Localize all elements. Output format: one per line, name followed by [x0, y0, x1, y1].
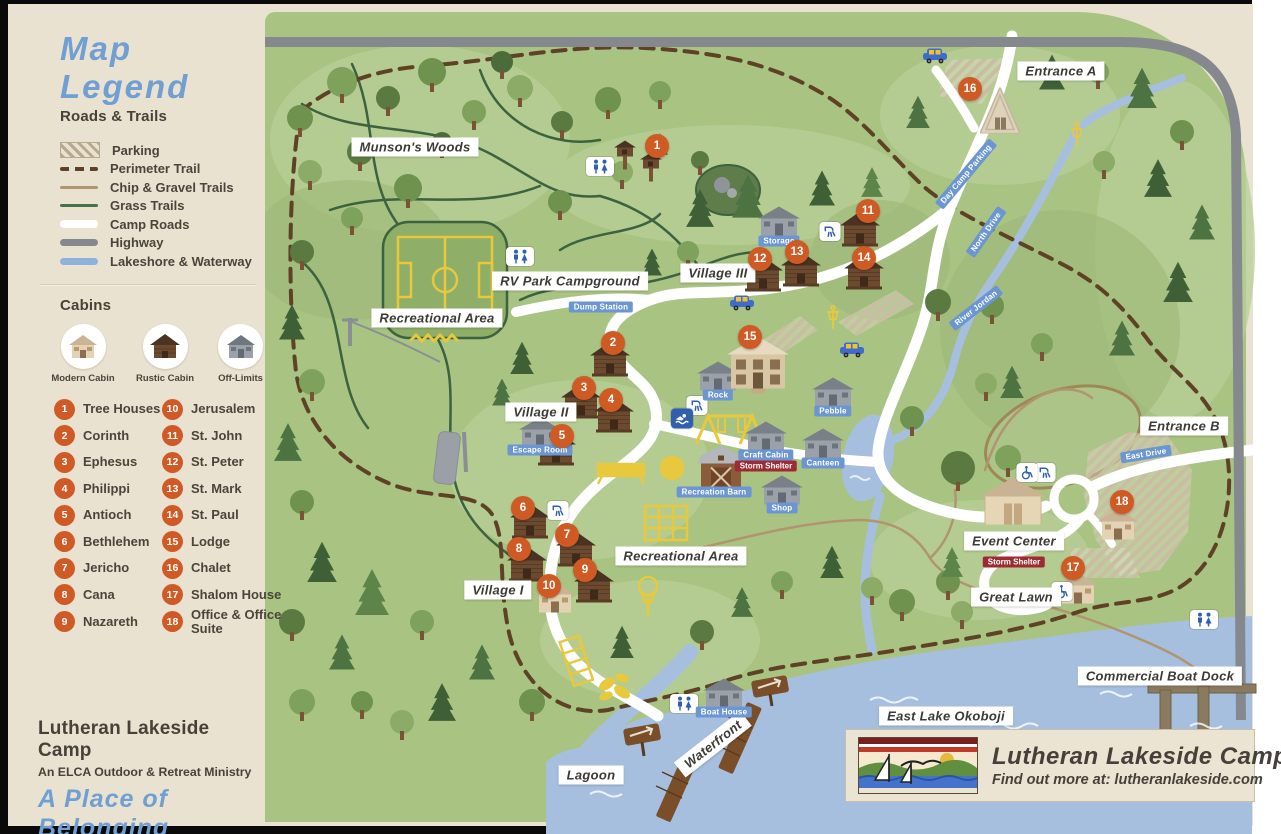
cabin-name: Office & Office Suite: [191, 608, 282, 635]
cabins-heading: Cabins: [60, 297, 256, 314]
roads-trails-heading: Roads & Trails: [60, 108, 256, 125]
legend-road-item-parking: Parking: [60, 141, 256, 159]
footer-ministry-line: An ELCA Outdoor & Retreat Ministry: [38, 765, 258, 779]
cabin-name: Nazareth: [83, 615, 138, 629]
cabin-type-label: Off-Limits: [218, 373, 263, 384]
cabin-number-badge: 8: [54, 584, 75, 605]
legend-cabin-jericho: 7Jericho: [54, 555, 162, 582]
cabin-type-legend: Modern CabinRustic CabinOff-Limits: [54, 324, 256, 384]
cabin-name: Shalom House: [191, 588, 281, 602]
cabin-number-badge: 15: [162, 531, 183, 552]
cabin-type-offlimits: Off-Limits: [218, 324, 263, 384]
cabin-number-badge: 14: [162, 505, 183, 526]
legend-cabin-bethlehem: 6Bethlehem: [54, 529, 162, 556]
cabin-name: Bethlehem: [83, 535, 149, 549]
cabin-number-badge: 1: [54, 399, 75, 420]
cabin-number-badge: 3: [54, 452, 75, 473]
cabin-name: Jericho: [83, 561, 129, 575]
cabin-type-label: Modern Cabin: [51, 373, 114, 384]
legend-panel: Map Legend Roads & Trails ParkingPerimet…: [8, 4, 265, 826]
cabin-number-badge: 2: [54, 425, 75, 446]
legend-cabin-st-paul: 14St. Paul: [162, 502, 282, 529]
cabin-number-badge: 11: [162, 425, 183, 446]
offlimits-cabin-icon: [218, 324, 263, 369]
camp-map-page: Munson's WoodsEntrance ARV Park Campgrou…: [0, 0, 1281, 834]
cabin-name: St. Peter: [191, 455, 244, 469]
cabin-name: St. John: [191, 429, 242, 443]
legend-road-label: Camp Roads: [110, 217, 189, 232]
logo-banner: Lutheran Lakeside Camp Find out more at:…: [845, 729, 1255, 802]
legend-divider: [40, 284, 256, 285]
legend-road-label: Lakeshore & Waterway: [110, 254, 252, 269]
cabin-number-badge: 17: [162, 584, 183, 605]
grass-swatch: [60, 204, 98, 207]
legend-road-item-camp-roads: Camp Roads: [60, 215, 256, 233]
legend-cabin-philippi: 4Philippi: [54, 476, 162, 503]
legend-cabin-shalom-house: 17Shalom House: [162, 582, 282, 609]
legend-cabin-nazareth: 9Nazareth: [54, 608, 162, 635]
modern-cabin-icon: [61, 324, 106, 369]
cabin-name: Jerusalem: [191, 402, 255, 416]
cabin-name: St. Paul: [191, 508, 239, 522]
legend-cabin-office-office-suite: 18Office & Office Suite: [162, 608, 282, 635]
perimeter-swatch: [60, 167, 98, 171]
legend-road-label: Chip & Gravel Trails: [110, 180, 234, 195]
legend-road-item-grass-trails: Grass Trails: [60, 197, 256, 215]
cabin-number-list: 1Tree Houses2Corinth3Ephesus4Philippi5An…: [54, 396, 256, 635]
legend-road-label: Grass Trails: [110, 198, 184, 213]
cabin-number-badge: 5: [54, 505, 75, 526]
legend-road-item-perimeter-trail: Perimeter Trail: [60, 160, 256, 178]
legend-title: Map Legend: [60, 30, 256, 106]
footer-tagline: A Place of Belonging: [38, 785, 258, 834]
cabin-type-modern: Modern Cabin: [54, 324, 112, 384]
legend-road-label: Highway: [110, 235, 163, 250]
legend-footer: Lutheran Lakeside Camp An ELCA Outdoor &…: [38, 718, 258, 834]
cabin-name: St. Mark: [191, 482, 242, 496]
legend-cabin-chalet: 16Chalet: [162, 555, 282, 582]
legend-cabin-st-mark: 13St. Mark: [162, 476, 282, 503]
legend-cabin-st-john: 11St. John: [162, 423, 282, 450]
water-swatch: [60, 258, 98, 265]
legend-road-item-chip-gravel-trails: Chip & Gravel Trails: [60, 178, 256, 196]
cabin-number-badge: 16: [162, 558, 183, 579]
cabin-number-badge: 18: [162, 611, 183, 632]
cabin-name: Cana: [83, 588, 115, 602]
legend-road-label: Parking: [112, 143, 160, 158]
legend-cabin-cana: 8Cana: [54, 582, 162, 609]
cabin-number-badge: 7: [54, 558, 75, 579]
cabin-name: Chalet: [191, 561, 231, 575]
cabin-number-badge: 9: [54, 611, 75, 632]
cabin-name: Philippi: [83, 482, 130, 496]
legend-road-label: Perimeter Trail: [110, 161, 200, 176]
legend-road-item-highway: Highway: [60, 234, 256, 252]
map-terrain: [265, 12, 1246, 822]
cabin-number-badge: 6: [54, 531, 75, 552]
logo-subtitle: Find out more at: lutheranlakeside.com: [992, 772, 1281, 788]
cabin-name: Lodge: [191, 535, 230, 549]
legend-cabin-ephesus: 3Ephesus: [54, 449, 162, 476]
footer-org-name: Lutheran Lakeside Camp: [38, 718, 258, 762]
legend-cabin-st-peter: 12St. Peter: [162, 449, 282, 476]
road-legend-list: ParkingPerimeter TrailChip & Gravel Trai…: [60, 141, 256, 270]
legend-cabin-lodge: 15Lodge: [162, 529, 282, 556]
parking-swatch: [60, 142, 100, 158]
cabin-name: Tree Houses: [83, 402, 160, 416]
legend-cabin-antioch: 5Antioch: [54, 502, 162, 529]
legend-road-item-lakeshore-waterway: Lakeshore & Waterway: [60, 252, 256, 270]
highway-swatch: [60, 239, 98, 246]
cabin-number-badge: 13: [162, 478, 183, 499]
cabin-name: Corinth: [83, 429, 129, 443]
rustic-cabin-icon: [143, 324, 188, 369]
cabin-name: Antioch: [83, 508, 131, 522]
chip-swatch: [60, 186, 98, 189]
cabin-number-badge: 12: [162, 452, 183, 473]
legend-cabin-tree-houses: 1Tree Houses: [54, 396, 162, 423]
cabin-number-badge: 10: [162, 399, 183, 420]
cabin-type-rustic: Rustic Cabin: [136, 324, 194, 384]
cabin-type-label: Rustic Cabin: [136, 373, 194, 384]
road-swatch: [60, 220, 98, 228]
cabin-name: Ephesus: [83, 455, 137, 469]
legend-cabin-jerusalem: 10Jerusalem: [162, 396, 282, 423]
cabin-number-badge: 4: [54, 478, 75, 499]
page-right-margin: [1252, 0, 1281, 834]
camp-logo: [858, 737, 978, 794]
logo-title: Lutheran Lakeside Camp: [992, 743, 1281, 771]
legend-cabin-corinth: 2Corinth: [54, 423, 162, 450]
